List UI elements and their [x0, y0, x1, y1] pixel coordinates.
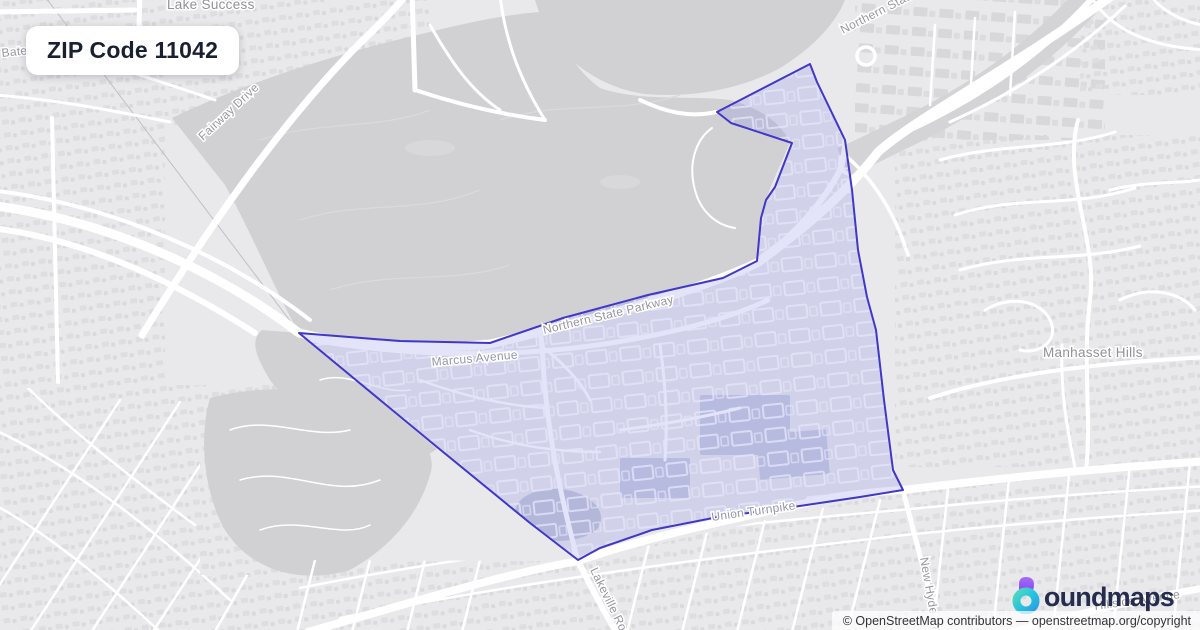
boundmaps-wordmark: oundmaps	[1044, 584, 1174, 614]
map-label-lake-success: Lake Success	[167, 0, 255, 12]
attribution-text: © OpenStreetMap contributors — openstree…	[843, 614, 1191, 628]
zip-code-badge: ZIP Code 11042	[26, 26, 239, 75]
map-label-manhasset-hills: Manhasset Hills	[1043, 345, 1143, 360]
boundmaps-logo-icon	[1012, 574, 1042, 614]
map-canvas: Lake Success Bates Fairway Drive Norther…	[0, 0, 1200, 630]
attribution-bar: © OpenStreetMap contributors — openstree…	[832, 611, 1200, 630]
zip-map-card: Lake Success Bates Fairway Drive Norther…	[0, 0, 1200, 630]
zip-code-title: ZIP Code 11042	[47, 37, 218, 63]
boundmaps-logo: oundmaps	[1012, 574, 1174, 614]
